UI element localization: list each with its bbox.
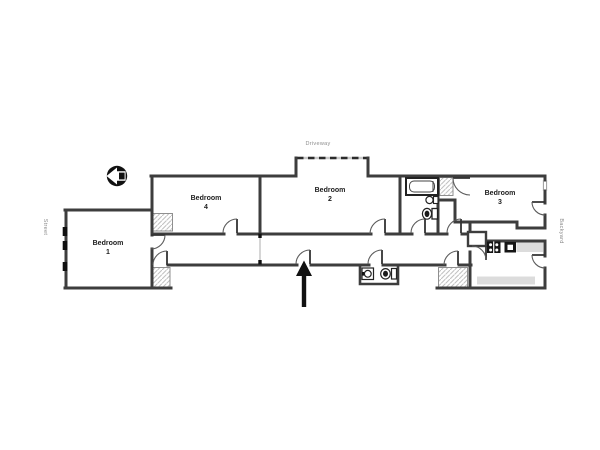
kitchen-appliance-icon xyxy=(505,242,517,253)
bedroom-2-label: Bedroom 2 xyxy=(315,187,346,203)
toilet-icon xyxy=(422,208,437,219)
room-name: Bedroom xyxy=(191,195,222,202)
hatch-area xyxy=(153,268,171,288)
bedroom-3-label: Bedroom 3 xyxy=(485,190,516,206)
bathtub-icon xyxy=(406,178,438,195)
room-number: 1 xyxy=(106,249,110,256)
room-name: Bedroom xyxy=(315,187,346,194)
kitchen-appliances xyxy=(487,242,516,254)
window-marks xyxy=(65,180,547,271)
room-name: Bedroom xyxy=(93,240,124,247)
wc-fixtures xyxy=(362,268,397,280)
counter xyxy=(477,277,535,285)
floor-plan-drawing: Bedroom 1 Bedroom 4 Bedroom 2 Bedroom 3 … xyxy=(0,0,600,450)
room-number: 2 xyxy=(328,196,332,203)
hatch-area xyxy=(153,214,173,232)
bedroom-4-label: Bedroom 4 xyxy=(191,195,222,211)
room-name: Bedroom xyxy=(485,190,516,197)
compass-west-icon xyxy=(107,166,128,186)
hatch-area xyxy=(440,178,454,196)
hatch-area xyxy=(439,268,468,288)
bedroom-1-label: Bedroom 1 xyxy=(93,240,124,256)
room-number: 4 xyxy=(204,204,208,211)
street-label: Street xyxy=(42,219,48,236)
wc-sink-icon xyxy=(362,268,374,280)
floor-plan-page: Bedroom 1 Bedroom 4 Bedroom 2 Bedroom 3 … xyxy=(0,0,600,450)
room-number: 3 xyxy=(498,199,502,206)
wc-toilet-icon xyxy=(381,269,397,280)
counter xyxy=(517,242,544,252)
entrance-arrow-icon xyxy=(296,261,312,308)
stove-icon xyxy=(487,242,501,254)
driveway-label: Driveway xyxy=(305,141,330,147)
bathroom-fixtures xyxy=(406,178,438,219)
sink-icon xyxy=(426,196,438,203)
backyard-label: Backyard xyxy=(558,218,564,243)
